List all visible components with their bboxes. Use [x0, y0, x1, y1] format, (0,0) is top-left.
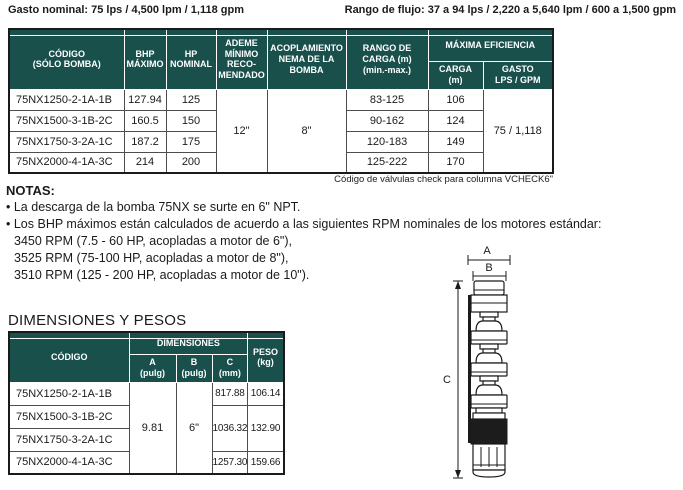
cell-acoplamiento-merged: 8" [267, 89, 346, 173]
cell-carga: 170 [428, 152, 483, 173]
cell-ademe-merged: 12" [216, 89, 267, 173]
cell-c: 1257.30 [212, 451, 248, 474]
cell-codigo: 75NX2000-4-1A-3C [9, 152, 124, 173]
pump-spec-table: CÓDIGO (SÓLO BOMBA) BHP MÁXIMO HP NOMINA… [8, 28, 554, 174]
top-specs-line: Gasto nominal: 75 lps / 4,500 lpm / 1,11… [8, 4, 676, 16]
cell-peso: 159.66 [248, 451, 284, 474]
table-row: 75NX1250-2-1A-1B 127.94 125 12" 8" 83-12… [9, 89, 553, 110]
cell-hp: 125 [166, 89, 216, 110]
dim-b: B [473, 262, 506, 281]
cell-carga: 124 [428, 110, 483, 131]
col-header-carga-m: CARGA (m) [428, 61, 483, 89]
col-header-acoplamiento-nema: ACOPLAMIENTO NEMA DE LA BOMBA [267, 29, 346, 89]
cell-carga: 149 [428, 131, 483, 152]
cell-hp: 150 [166, 110, 216, 131]
cell-codigo: 75NX1500-3-1B-2C [9, 110, 124, 131]
cell-codigo: 75NX1250-2-1A-1B [9, 382, 129, 405]
col-header-dimensiones: DIMENSIONES [129, 332, 248, 354]
col-header-codigo: CÓDIGO [9, 332, 129, 382]
cell-hp: 175 [166, 131, 216, 152]
cell-hp: 200 [166, 152, 216, 173]
cell-codigo: 75NX1750-3-2A-1C [9, 131, 124, 152]
cell-rango: 90-162 [346, 110, 428, 131]
dimensions-weights-table: CÓDIGO DIMENSIONES PESO (kg) A (pulg) B … [8, 331, 285, 475]
cell-carga: 106 [428, 89, 483, 110]
table-row: 75NX1250-2-1A-1B 9.81 6" 817.88 106.14 [9, 382, 284, 405]
dim-label-c: C [443, 374, 451, 386]
cell-bhp: 127.94 [124, 89, 166, 110]
nota-bullet-2: Los BHP máximos están calculados de acue… [6, 216, 656, 233]
cell-a-merged: 9.81 [129, 382, 176, 474]
dim-label-a: A [483, 245, 491, 257]
cell-peso: 106.14 [248, 382, 284, 405]
cell-codigo: 75NX2000-4-1A-3C [9, 451, 129, 474]
cell-bhp: 160.5 [124, 110, 166, 131]
col-header-b-pulg: B (pulg) [176, 354, 212, 382]
cell-bhp: 187.2 [124, 131, 166, 152]
cell-c: 817.88 [212, 382, 248, 405]
cell-rango: 83-125 [346, 89, 428, 110]
col-header-codigo: CÓDIGO (SÓLO BOMBA) [9, 29, 124, 89]
col-header-c-mm: C (mm) [212, 354, 248, 382]
pump-motor-cage [473, 444, 505, 477]
cell-codigo: 75NX1500-3-1B-2C [9, 405, 129, 428]
cell-codigo: 75NX1250-2-1A-1B [9, 89, 124, 110]
col-header-hp-nominal: HP NOMINAL [166, 29, 216, 89]
cell-bhp: 214 [124, 152, 166, 173]
col-header-peso: PESO (kg) [248, 332, 284, 382]
col-header-gasto-lps-gpm: GASTO LPS / GPM [483, 61, 553, 89]
rango-flujo-text: Rango de flujo: 37 a 94 lps / 2,220 a 5,… [345, 4, 676, 16]
pump-diagram: A B C [440, 243, 570, 489]
cell-rango: 120-183 [346, 131, 428, 152]
col-header-a-pulg: A (pulg) [129, 354, 176, 382]
dim-label-b: B [485, 262, 492, 274]
col-header-rango-carga: RANGO DE CARGA (m) (min.-max.) [346, 29, 428, 89]
col-header-ademe-minimo: ADEME MÍNIMO RECO- MENDADO [216, 29, 267, 89]
cell-rango: 125-222 [346, 152, 428, 173]
cell-codigo: 75NX1750-3-2A-1C [9, 428, 129, 451]
col-header-bhp-maximo: BHP MÁXIMO [124, 29, 166, 89]
pump-intake-screen [471, 419, 507, 444]
cell-gasto-merged: 75 / 1,118 [483, 89, 553, 173]
dim-c: C [443, 281, 463, 478]
gasto-nominal-text: Gasto nominal: 75 lps / 4,500 lpm / 1,11… [8, 4, 244, 16]
notas-title: NOTAS: [6, 183, 656, 199]
cell-c-merged: 1036.32 [212, 405, 248, 451]
dimensiones-title: DIMENSIONES Y PESOS [8, 312, 186, 329]
col-header-maxima-eficiencia: MÁXIMA EFICIENCIA [428, 29, 553, 61]
cell-peso-merged: 132.90 [248, 405, 284, 451]
cell-b-merged: 6" [176, 382, 212, 474]
nota-bullet-1: La descarga de la bomba 75NX se surte en… [6, 199, 656, 216]
pump-body [470, 281, 508, 477]
